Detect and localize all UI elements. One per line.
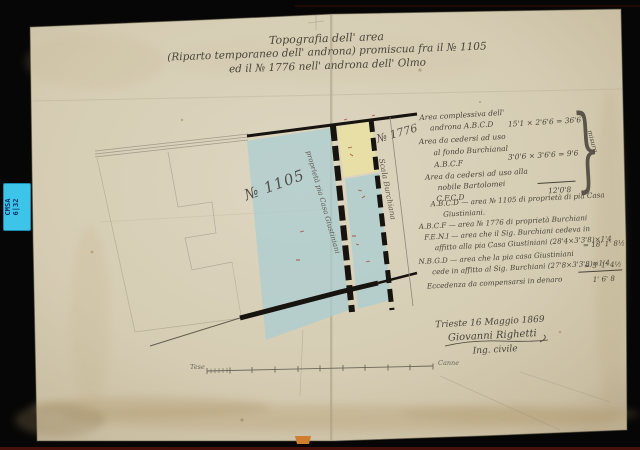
sum-rule <box>538 181 576 184</box>
meas-line: A.B.C.F <box>434 160 463 169</box>
meas-value: 15'1 × 2'6'6 = 36'6 <box>508 116 582 128</box>
sticker-line1: CMSA <box>4 184 12 230</box>
scale-right-label: Canne <box>438 360 459 367</box>
legend-value: = 5' 1' 4½ <box>584 260 622 269</box>
legend-line: Giustiniani. <box>443 209 485 218</box>
orange-tab <box>295 436 311 444</box>
legend-value: = 18' 1' 8½ <box>583 239 625 248</box>
sticker-line2: 6|32 <box>12 184 20 230</box>
legend-total: 1' 6' 8 <box>593 275 616 283</box>
meas-value: 3'0'6 × 3'6'6 = 9'6 <box>508 149 579 161</box>
legend-block: A.B.C.D — area № 1105 di proprietà di pi… <box>402 190 627 306</box>
legend-line: Eccedenza da compensarsi in denaro <box>427 276 563 290</box>
archive-sticker: CMSA 6|32 <box>3 183 31 231</box>
photo-frame: CMSA 6|32 Topografia dell' area (Riparto… <box>0 0 640 450</box>
meas-line: al fondo Burchianal <box>433 145 508 157</box>
meas-line: Area da cedersi ad uso alla <box>425 168 528 182</box>
top-edge-tint <box>295 5 640 7</box>
scale-left-label: Tese <box>190 364 205 371</box>
meas-line: nobile Bartolomei <box>437 180 505 192</box>
meas-line: androna A.B.C.D <box>430 121 494 132</box>
